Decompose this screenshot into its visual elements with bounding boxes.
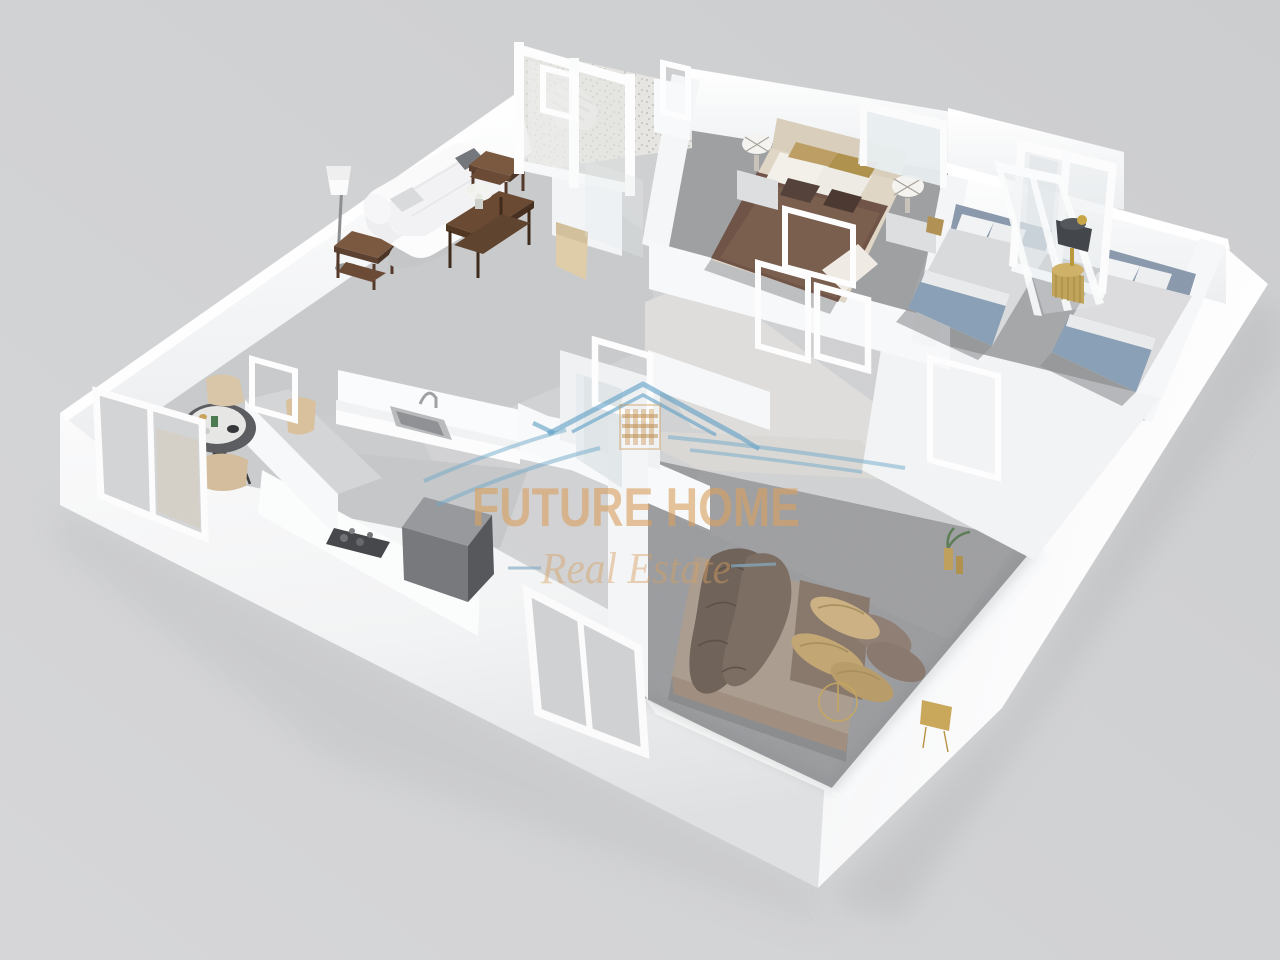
svg-text:Real Estate: Real Estate xyxy=(540,544,731,593)
svg-text:FUTURE HOME: FUTURE HOME xyxy=(472,476,800,538)
